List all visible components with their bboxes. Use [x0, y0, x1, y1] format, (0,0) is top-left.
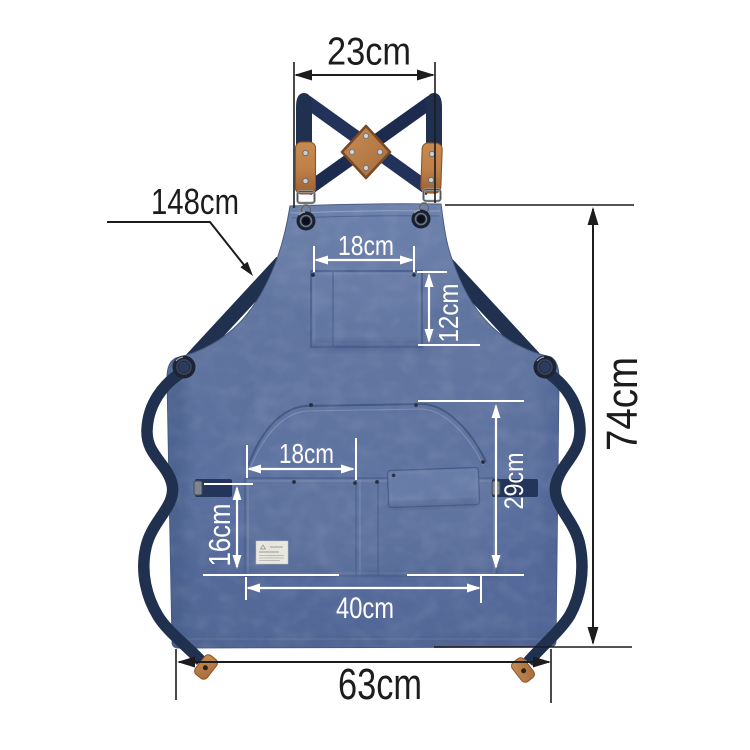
- svg-text:148cm: 148cm: [151, 181, 239, 222]
- svg-text:23cm: 23cm: [327, 31, 411, 74]
- svg-text:40cm: 40cm: [336, 592, 394, 625]
- svg-text:12cm: 12cm: [433, 284, 464, 343]
- svg-text:18cm: 18cm: [338, 230, 394, 261]
- svg-text:29cm: 29cm: [499, 453, 529, 510]
- svg-text:63cm: 63cm: [338, 660, 422, 709]
- svg-text:18cm: 18cm: [279, 438, 334, 469]
- svg-text:16cm: 16cm: [202, 504, 237, 567]
- svg-text:74cm: 74cm: [598, 357, 647, 451]
